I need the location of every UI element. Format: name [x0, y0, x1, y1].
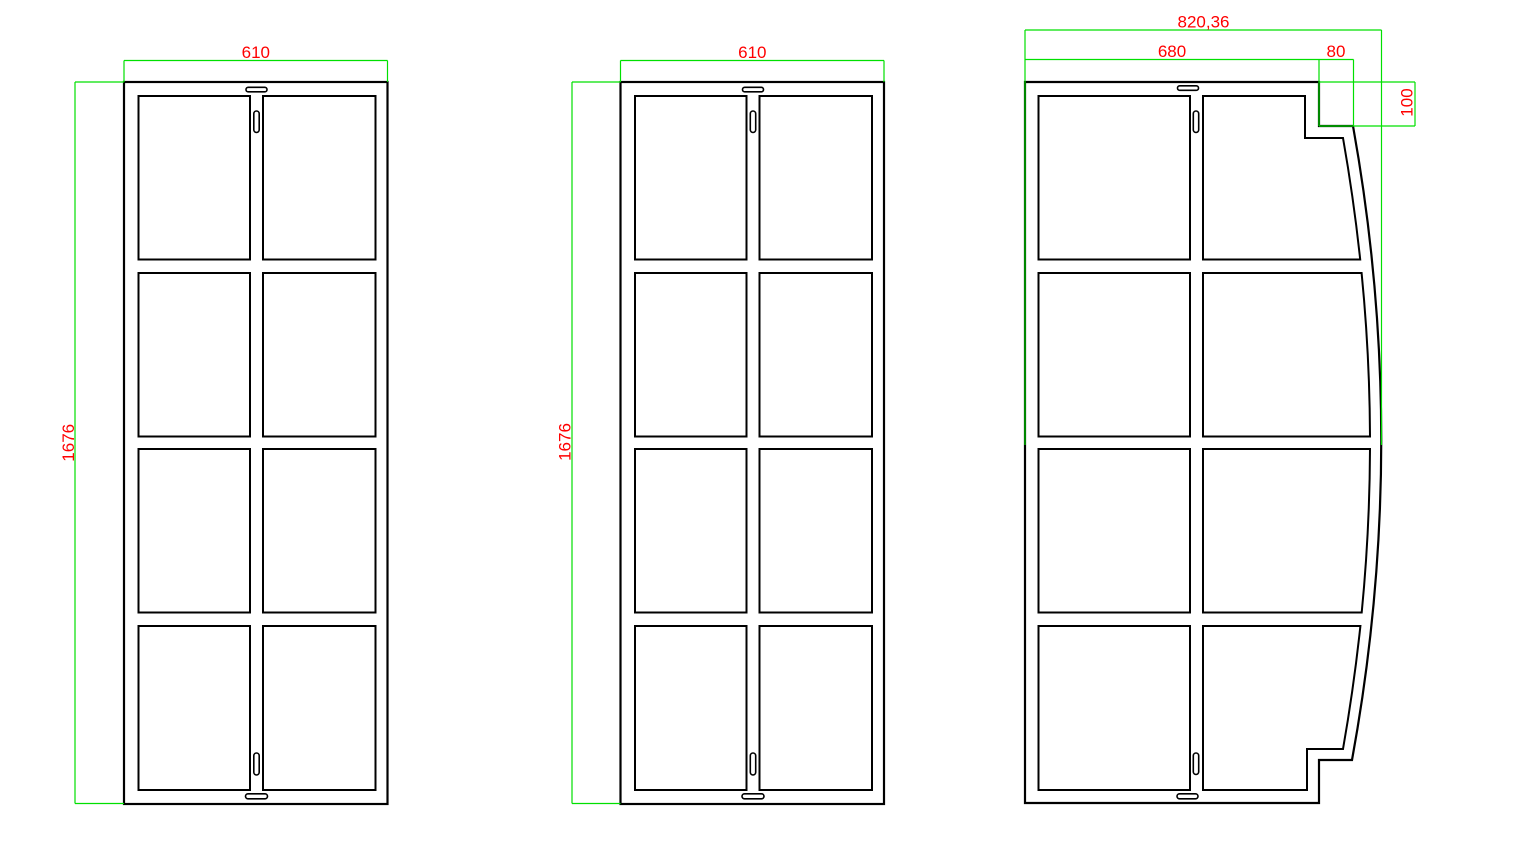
- corner-step-height-dimension-label: 100: [1398, 88, 1417, 116]
- width-dimension-label: 610: [738, 43, 766, 62]
- slot-bottom-horizontal: [1177, 794, 1198, 799]
- slot-bottom-vertical: [1193, 753, 1198, 775]
- slot-top-horizontal: [743, 87, 764, 92]
- slot-bottom-vertical: [750, 753, 755, 775]
- slot-top-vertical: [254, 111, 259, 133]
- slot-bottom-horizontal: [742, 794, 764, 799]
- corner-step-width-dimension-label: 80: [1327, 42, 1346, 61]
- panel-right: [1025, 82, 1381, 803]
- cad-drawing: 610 1676 610 1676 820,36 680 80 100: [0, 0, 1531, 860]
- slot-bottom-horizontal: [246, 794, 268, 799]
- frame-outline: [621, 82, 885, 804]
- drawing-canvas: 610 1676 610 1676 820,36 680 80 100: [0, 0, 1531, 860]
- slot-top-horizontal: [246, 87, 267, 92]
- height-dimension-label: 1676: [59, 424, 78, 462]
- panel-middle: [621, 82, 885, 804]
- frame-outline: [124, 82, 388, 804]
- overall-width-dimension-label: 820,36: [1178, 13, 1230, 32]
- width-dimension-label: 610: [242, 43, 270, 62]
- main-width-dimension-label: 680: [1158, 42, 1186, 61]
- slot-top-horizontal: [1178, 86, 1199, 91]
- height-dimension-label: 1676: [556, 423, 575, 461]
- slot-top-vertical: [1193, 111, 1198, 133]
- slot-bottom-vertical: [254, 753, 259, 775]
- slot-top-vertical: [750, 111, 755, 133]
- panel-left: [124, 82, 388, 804]
